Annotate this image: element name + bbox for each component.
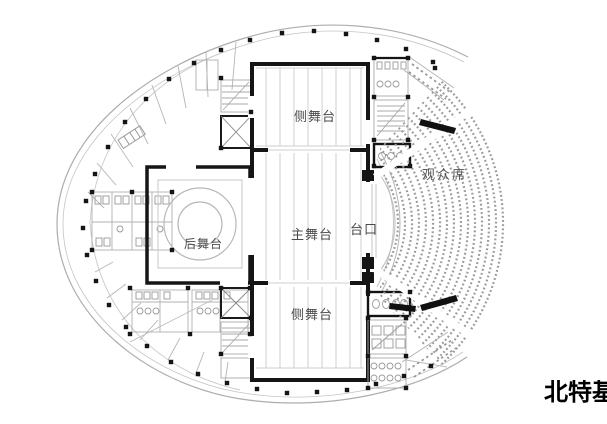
floor-plan: 侧舞台 主舞台 台口 后舞台 侧舞台 观众席 北特基 (0, 0, 607, 424)
main-stage-label: 主舞台 (291, 224, 333, 243)
elevator-bottom-left (221, 288, 251, 318)
top-right-rooms (374, 58, 410, 167)
ring-partitions (88, 42, 236, 382)
watermark-text: 北特基 (544, 380, 607, 404)
seating-front-arc (380, 174, 395, 272)
watermark-partial-char: 基 (592, 380, 607, 404)
side-stage-bottom-label: 侧舞台 (291, 304, 333, 323)
side-stage-top-label: 侧舞台 (294, 106, 336, 125)
elevator-top-left (221, 116, 251, 148)
stage-wall-segments (250, 148, 374, 285)
left-washrooms (92, 192, 172, 250)
side-box-top (404, 56, 454, 100)
stair-top-left (221, 80, 251, 112)
ring-stair (118, 126, 145, 149)
rear-stage-label: 后舞台 (184, 235, 223, 252)
wall-openings (166, 96, 372, 358)
auditorium (370, 56, 503, 377)
audience-seating-label: 观众席 (422, 164, 467, 183)
watermark-main: 北特 (544, 380, 592, 404)
proscenium-label: 台口 (350, 219, 378, 238)
corridor-diagonal (130, 300, 212, 342)
top-left-rooms (196, 60, 218, 90)
floor-plan-drawing (0, 0, 607, 424)
stair-bottom-left (221, 322, 251, 378)
